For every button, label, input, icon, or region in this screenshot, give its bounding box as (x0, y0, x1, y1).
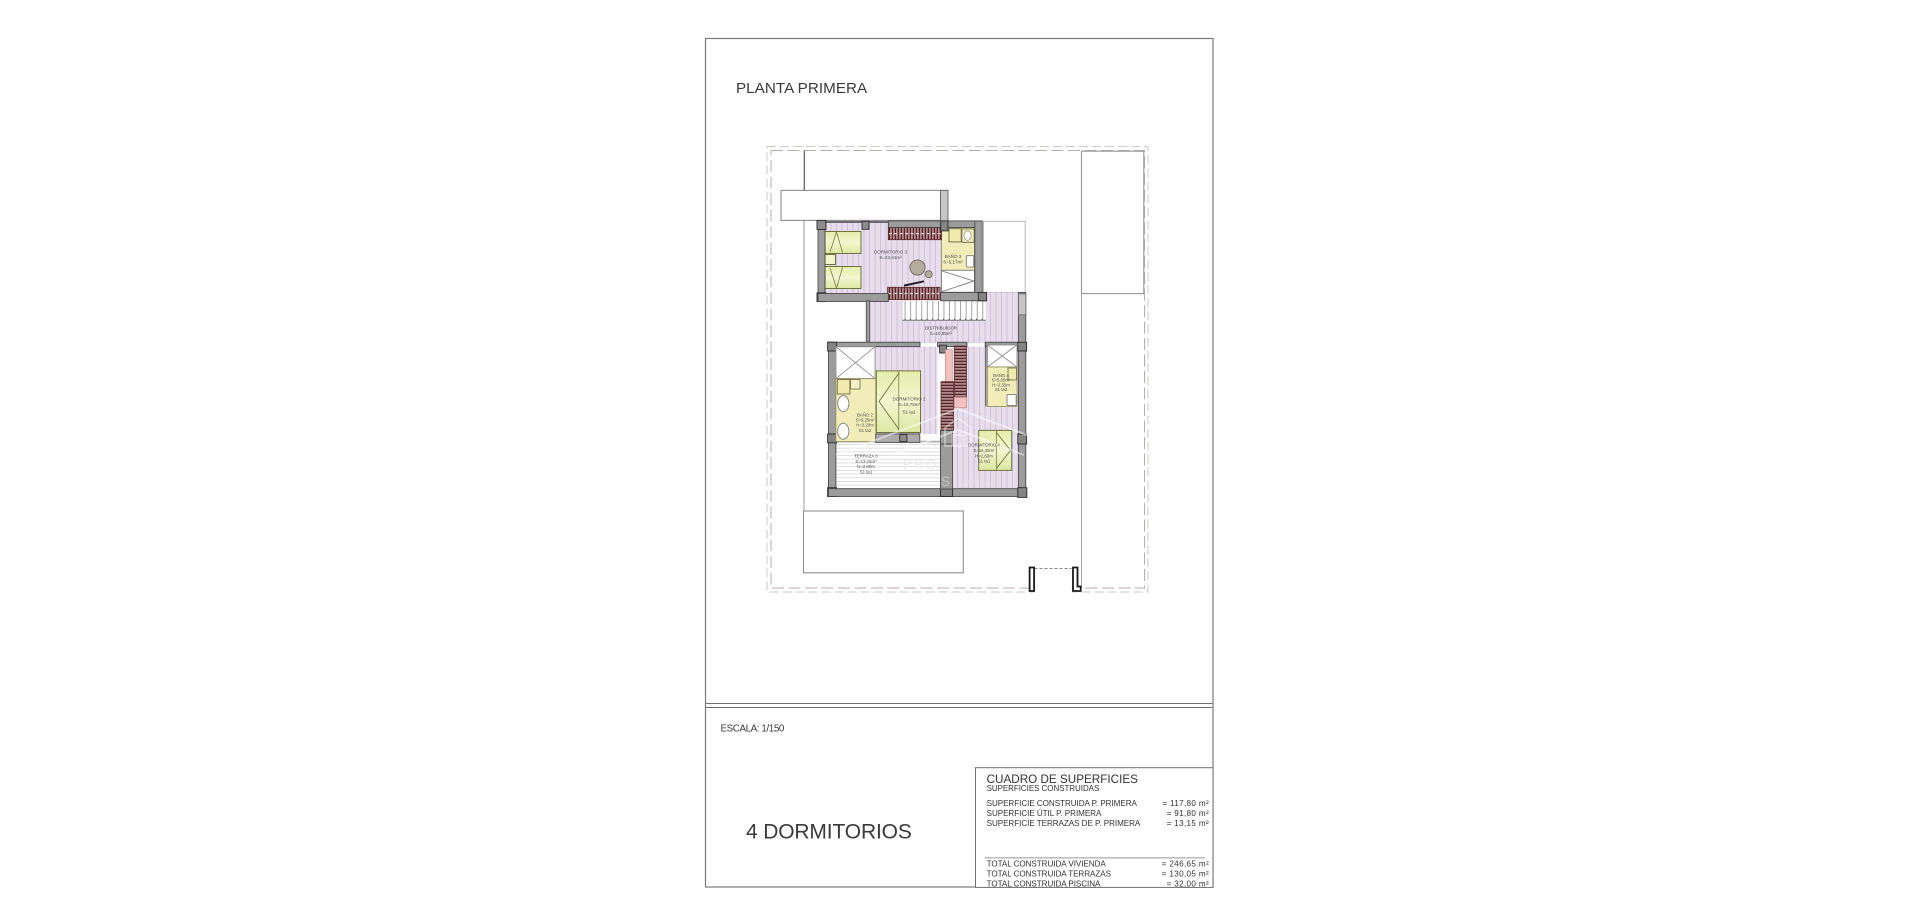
svg-text:TOTAL CONSTRUIDA TERRAZAS: TOTAL CONSTRUIDA TERRAZAS (987, 869, 1112, 878)
svg-text:DORMITORIO 4: DORMITORIO 4 (968, 443, 1000, 448)
svg-text:DORMITORIO 3: DORMITORIO 3 (874, 250, 907, 255)
svg-text:S=5,17m²: S=5,17m² (943, 260, 963, 265)
svg-text:H=2,80m: H=2,80m (857, 464, 875, 469)
svg-text:SPAIN: SPAIN (941, 474, 991, 489)
svg-text:TOTAL CONSTRUIDA PISCINA: TOTAL CONSTRUIDA PISCINA (987, 879, 1101, 888)
svg-text:S1 ta1: S1 ta1 (860, 469, 873, 474)
svg-text:S1 ta1: S1 ta1 (902, 410, 916, 415)
svg-text:S=23,44m²: S=23,44m² (879, 255, 902, 260)
svg-text:DORMITORIO 2: DORMITORIO 2 (893, 397, 926, 402)
svg-text:S1 ta1: S1 ta1 (978, 459, 991, 464)
svg-text:SUPERFICIE CONSTRUIDA P. PRIME: SUPERFICIE CONSTRUIDA P. PRIMERA (987, 799, 1138, 808)
svg-text:= 246,65 m²: = 246,65 m² (1162, 860, 1209, 869)
svg-text:= 91,80 m²: = 91,80 m² (1167, 809, 1209, 818)
svg-text:= 130,05 m²: = 130,05 m² (1162, 869, 1209, 878)
svg-text:SUPERFICIES CONSTRUIDAS: SUPERFICIES CONSTRUIDAS (987, 784, 1100, 793)
svg-text:ESCALA: 1/150: ESCALA: 1/150 (721, 724, 785, 735)
svg-text:PLANTA PRIMERA: PLANTA PRIMERA (736, 80, 868, 97)
svg-text:PRO: PRO (903, 457, 938, 472)
svg-text:S=16,35m²: S=16,35m² (973, 448, 995, 453)
svg-text:S1 ta2: S1 ta2 (995, 387, 1008, 392)
svg-text:TERRAZA 3: TERRAZA 3 (854, 454, 878, 459)
svg-text:= 32,00 m²: = 32,00 m² (1167, 879, 1209, 888)
svg-text:S=10,85m²: S=10,85m² (930, 331, 953, 336)
svg-text:H=2,60m: H=2,60m (975, 453, 993, 458)
svg-text:TOTAL CONSTRUIDA VIVIENDA: TOTAL CONSTRUIDA VIVIENDA (987, 860, 1107, 869)
svg-text:S1 ta2: S1 ta2 (859, 428, 872, 433)
svg-text:S=13,15m²: S=13,15m² (855, 459, 877, 464)
svg-text:4 DORMITORIOS: 4 DORMITORIOS (746, 821, 912, 844)
svg-text:S=16,75m²: S=16,75m² (898, 402, 921, 407)
svg-text:SUPERFICIE TERRAZAS DE P. PRIM: SUPERFICIE TERRAZAS DE P. PRIMERA (987, 819, 1141, 828)
svg-text:= 13,15 m²: = 13,15 m² (1167, 819, 1209, 828)
svg-text:BAÑO 3: BAÑO 3 (945, 253, 962, 259)
svg-text:SUPERFICIE ÚTIL P. PRIMERA: SUPERFICIE ÚTIL P. PRIMERA (987, 809, 1102, 818)
svg-text:DISTRIBUIDOR: DISTRIBUIDOR (925, 326, 958, 331)
svg-text:= 117,80 m²: = 117,80 m² (1162, 799, 1209, 808)
